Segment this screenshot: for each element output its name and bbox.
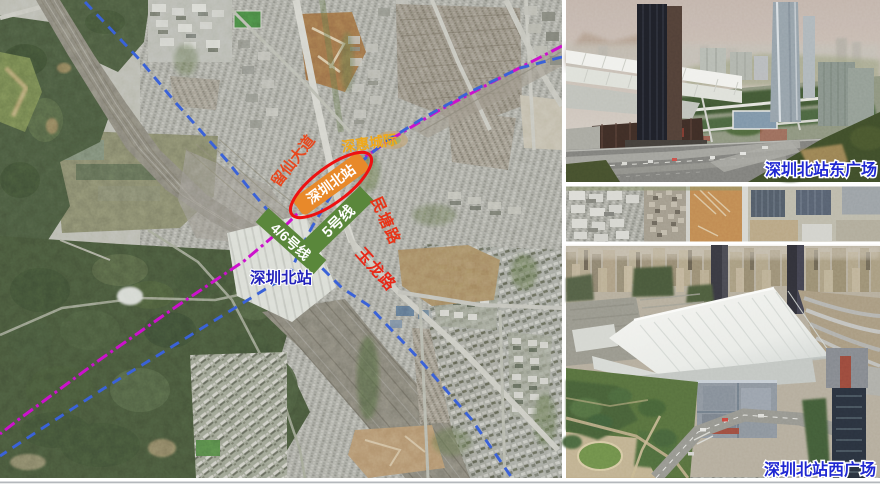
svg-text:深圳北站: 深圳北站 (250, 268, 313, 287)
svg-text:深圳北站西广场: 深圳北站西广场 (764, 460, 876, 479)
svg-text:深圳北站东广场: 深圳北站东广场 (765, 160, 877, 179)
